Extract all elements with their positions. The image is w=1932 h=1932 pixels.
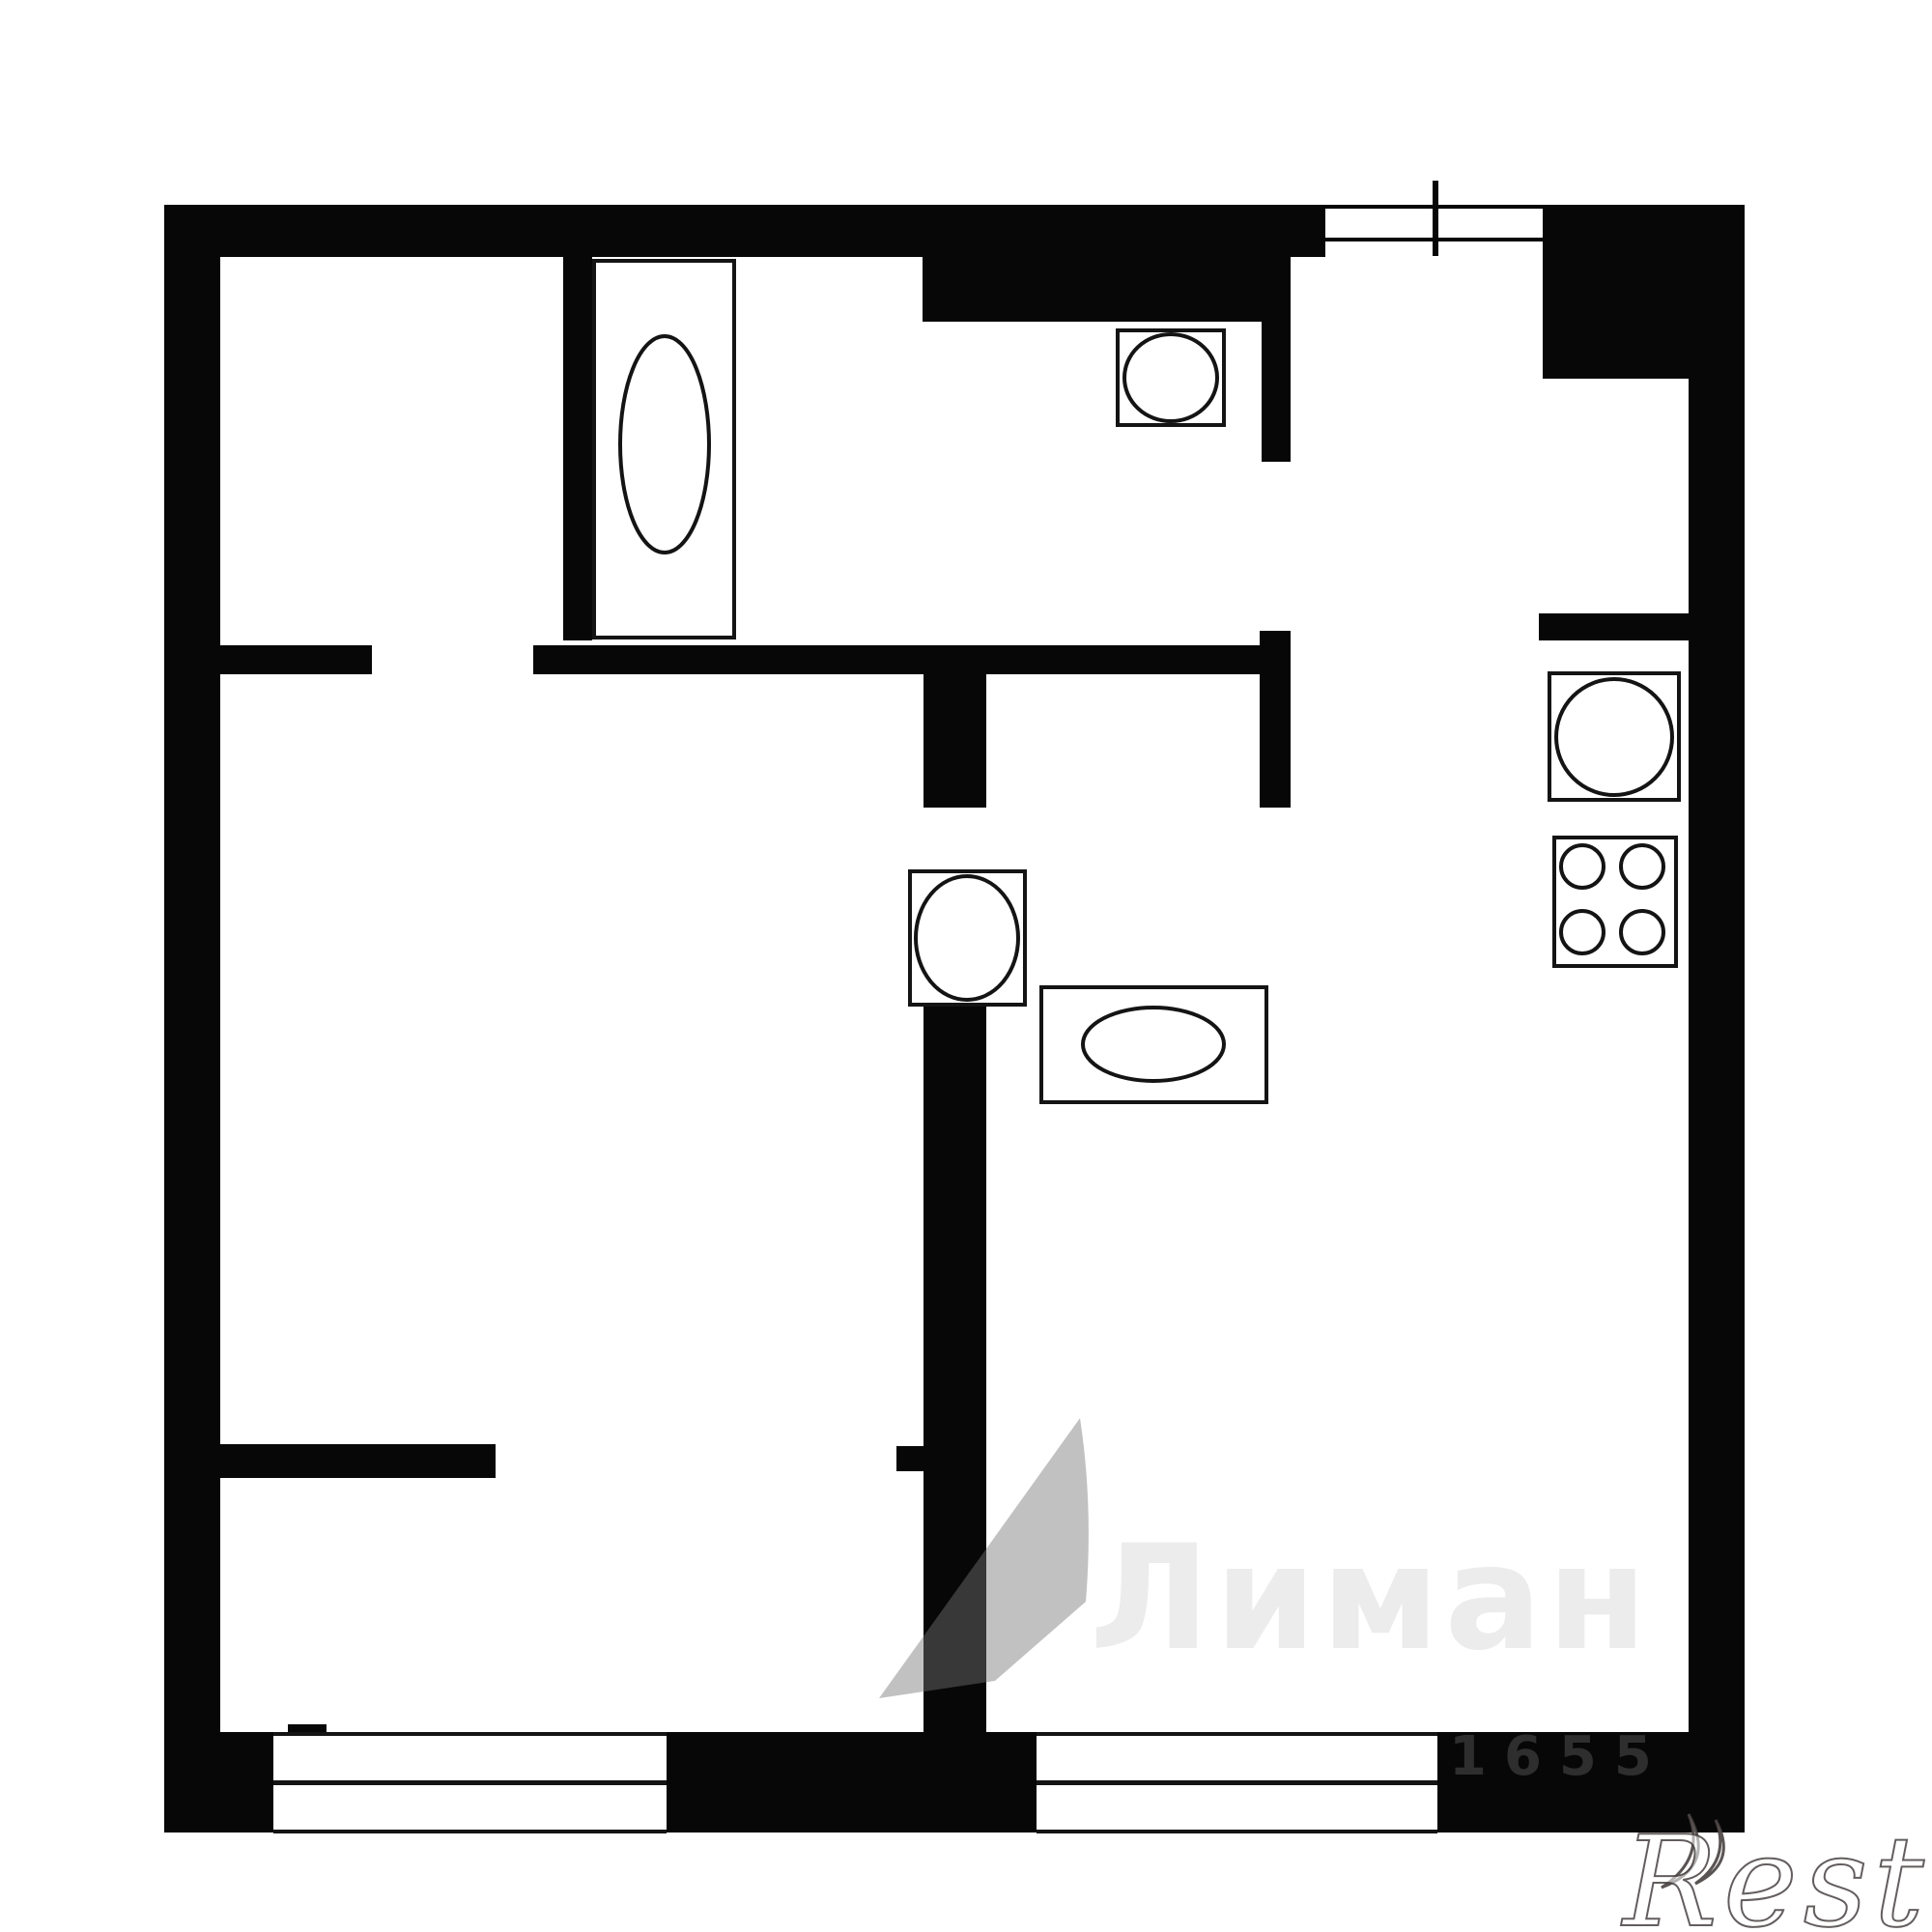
stove-icon (1552, 836, 1678, 968)
kitchen-counter-stub (1539, 613, 1693, 640)
entrance-door-line-bot (1325, 238, 1543, 241)
window-left-pane-line (273, 1830, 667, 1833)
mid-wall-upper (923, 674, 986, 808)
closet-partition (563, 257, 592, 640)
code-watermark: 1655 (1449, 1725, 1669, 1788)
hall-bottom-wall-right (533, 645, 1285, 674)
agency-logo-watermark (850, 1391, 1121, 1719)
window-left-pane-line (273, 1732, 667, 1736)
toilet-icon (908, 869, 1027, 1007)
outer-wall-left (164, 205, 220, 1833)
kitchen-sink (1548, 671, 1681, 802)
bathroom-stub-upper (1262, 257, 1291, 462)
outer-wall-right (1689, 205, 1745, 1833)
washbasin (1039, 985, 1268, 1104)
bathtub-icon (592, 259, 736, 639)
bathroom-top-block (923, 205, 1264, 322)
stove (1552, 836, 1678, 968)
entrance-door-line-top (1325, 205, 1543, 209)
corner-block-top-right (1543, 205, 1745, 379)
floorplan-canvas: Лиман 1655 Restate (0, 0, 1932, 1932)
window-right-pane-line (1037, 1732, 1437, 1736)
agency-name-watermark: Лиман (1090, 1515, 1652, 1683)
brand-watermark: Restate (1623, 1808, 1932, 1932)
entrance-door-tick (1433, 181, 1438, 256)
bathroom-stub-lower (1260, 631, 1291, 808)
window-right-pane-line (1037, 1830, 1437, 1833)
hall-bottom-wall-left (220, 645, 372, 674)
washbasin-icon (1039, 985, 1268, 1104)
toilet (908, 869, 1027, 1007)
kitchen-sink-icon (1548, 671, 1681, 802)
living-divider-stub (220, 1444, 496, 1478)
bathtub (592, 259, 736, 639)
window-hinge-tick (288, 1724, 327, 1732)
window-right-pane-line (1037, 1780, 1437, 1785)
washing-machine-icon (1116, 328, 1226, 427)
window-left-pane-line (273, 1780, 667, 1785)
washing-machine (1116, 328, 1226, 427)
